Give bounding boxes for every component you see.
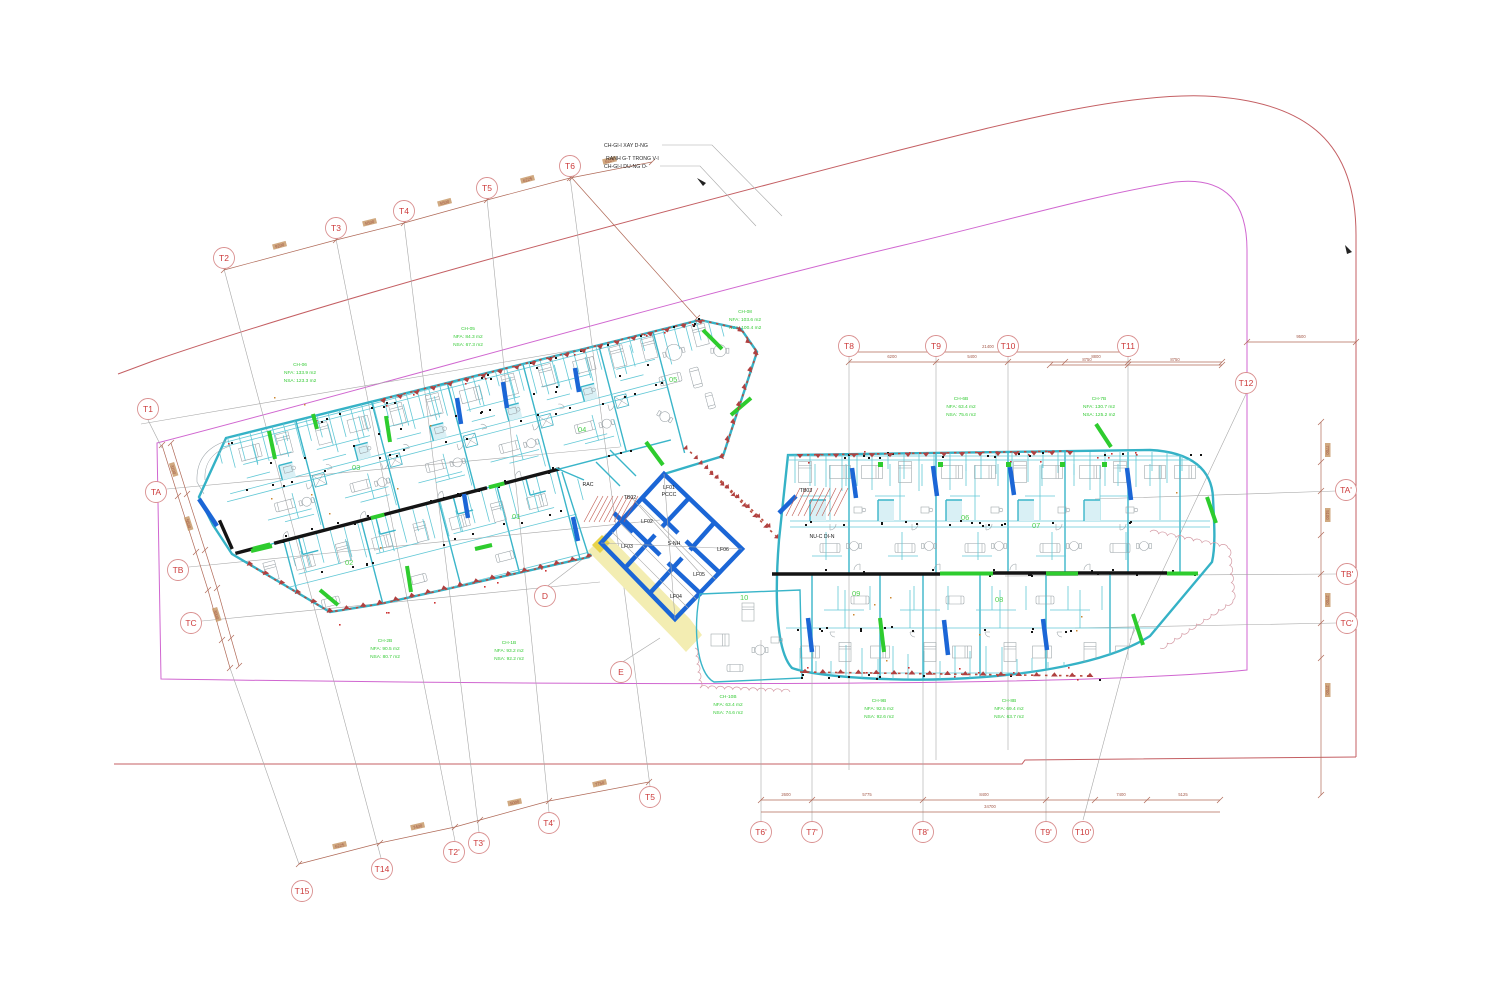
svg-text:NFA: 63.4 m2: NFA: 63.4 m2	[713, 702, 743, 708]
svg-text:07: 07	[1032, 521, 1040, 530]
svg-text:5100: 5100	[1325, 510, 1330, 520]
svg-text:TC': TC'	[1341, 618, 1354, 628]
svg-text:T3': T3'	[473, 838, 485, 848]
svg-text:NFA: 93.2 m2: NFA: 93.2 m2	[494, 648, 524, 654]
svg-text:T4': T4'	[543, 818, 555, 828]
svg-text:T15: T15	[295, 886, 310, 896]
svg-text:T6: T6	[565, 161, 575, 171]
svg-text:T9: T9	[931, 341, 941, 351]
svg-text:CH-GI-I DU-NG O-: CH-GI-I DU-NG O-	[604, 164, 648, 170]
svg-text:RAC: RAC	[583, 482, 594, 488]
svg-text:CH-GI-I XAY D-NG: CH-GI-I XAY D-NG	[604, 143, 648, 149]
svg-text:LF04: LF04	[670, 594, 682, 600]
svg-text:9500: 9500	[1296, 334, 1306, 339]
svg-text:CH-05: CH-05	[461, 326, 475, 332]
svg-text:NFA: 133.9 m2: NFA: 133.9 m2	[284, 370, 316, 376]
svg-text:T11: T11	[1121, 341, 1135, 351]
svg-text:NFA: 84.3 m2: NFA: 84.3 m2	[453, 334, 483, 340]
svg-text:CH-8B: CH-8B	[1002, 698, 1016, 704]
svg-text:8750: 8750	[1082, 357, 1092, 362]
svg-text:T9': T9'	[1040, 827, 1052, 837]
svg-text:T4: T4	[399, 206, 409, 216]
svg-text:21400: 21400	[982, 344, 994, 349]
svg-text:8750: 8750	[1170, 357, 1180, 362]
svg-text:NFA: 63.4 m2: NFA: 63.4 m2	[946, 404, 976, 410]
svg-text:S-NH: S-NH	[668, 541, 681, 547]
svg-text:NSA: 80.7 m2: NSA: 80.7 m2	[370, 654, 400, 660]
svg-text:TC: TC	[185, 618, 196, 628]
svg-text:TB02: TB02	[624, 495, 637, 501]
svg-text:LF05: LF05	[693, 572, 705, 578]
svg-text:NFA: 69.4 m2: NFA: 69.4 m2	[994, 706, 1024, 712]
svg-text:T8: T8	[844, 341, 854, 351]
svg-text:09: 09	[852, 589, 860, 598]
svg-text:D: D	[542, 591, 548, 601]
svg-text:TB03: TB03	[800, 488, 813, 494]
svg-text:02: 02	[345, 558, 353, 567]
svg-text:TB: TB	[173, 565, 184, 575]
svg-text:10: 10	[740, 593, 748, 602]
svg-text:NSA: 67.3 m2: NSA: 67.3 m2	[453, 342, 483, 348]
svg-text:T10': T10'	[1075, 827, 1092, 837]
svg-text:7400: 7400	[1116, 792, 1126, 797]
svg-text:TA': TA'	[1340, 485, 1352, 495]
svg-text:CH-2B: CH-2B	[378, 638, 392, 644]
svg-text:CH-6B: CH-6B	[954, 396, 968, 402]
svg-text:NSA: 74.6 m2: NSA: 74.6 m2	[713, 710, 743, 716]
svg-text:CH-08: CH-08	[738, 309, 752, 315]
svg-text:CH-06: CH-06	[293, 362, 307, 368]
svg-text:T2': T2'	[448, 847, 460, 857]
svg-text:NSA: 92.2 m2: NSA: 92.2 m2	[494, 656, 524, 662]
svg-text:LF06: LF06	[717, 547, 729, 553]
svg-text:NSA: 75.6 m2: NSA: 75.6 m2	[946, 412, 976, 418]
svg-text:NU-C DI-N: NU-C DI-N	[809, 534, 834, 540]
svg-text:TA: TA	[151, 487, 162, 497]
svg-text:CH-9B: CH-9B	[872, 698, 886, 704]
svg-text:PCCC: PCCC	[662, 492, 677, 498]
svg-text:T8': T8'	[917, 827, 929, 837]
svg-text:2700: 2700	[1325, 595, 1330, 605]
svg-text:8400: 8400	[979, 792, 989, 797]
svg-text:T7': T7'	[806, 827, 818, 837]
svg-text:5125: 5125	[1178, 792, 1188, 797]
svg-text:6200: 6200	[887, 354, 897, 359]
svg-text:NSA: 123.3 m2: NSA: 123.3 m2	[284, 378, 317, 384]
svg-text:T2: T2	[219, 253, 229, 263]
svg-text:06: 06	[961, 513, 969, 522]
svg-text:7700: 7700	[1325, 445, 1330, 455]
svg-text:2600: 2600	[781, 792, 791, 797]
svg-text:5775: 5775	[862, 792, 872, 797]
svg-text:T14: T14	[375, 864, 390, 874]
svg-text:5400: 5400	[967, 354, 977, 359]
svg-text:NSA: 125.2 m2: NSA: 125.2 m2	[1083, 412, 1116, 418]
svg-text:T5: T5	[645, 792, 655, 802]
svg-text:34700: 34700	[984, 804, 996, 809]
svg-text:LF02: LF02	[641, 519, 653, 525]
svg-text:T5: T5	[482, 183, 492, 193]
svg-text:NFA: 90.5 m2: NFA: 90.5 m2	[370, 646, 400, 652]
svg-text:04: 04	[578, 425, 586, 434]
svg-text:01: 01	[512, 512, 520, 521]
svg-text:8800: 8800	[1091, 354, 1101, 359]
svg-text:08: 08	[995, 595, 1003, 604]
svg-text:CH-1B: CH-1B	[502, 640, 516, 646]
svg-text:T10: T10	[1001, 341, 1016, 351]
svg-text:NSA: 92.6 m2: NSA: 92.6 m2	[864, 714, 894, 720]
svg-text:LF01: LF01	[663, 485, 675, 491]
svg-text:05: 05	[669, 375, 677, 384]
svg-text:T12: T12	[1239, 378, 1254, 388]
svg-text:T1: T1	[143, 404, 153, 414]
svg-text:03: 03	[352, 463, 360, 472]
svg-text:TB': TB'	[1341, 569, 1354, 579]
svg-text:LF03: LF03	[621, 544, 633, 550]
svg-text:NSA: 63.7 m2: NSA: 63.7 m2	[994, 714, 1024, 720]
svg-text:T3: T3	[331, 223, 341, 233]
svg-text:T6': T6'	[755, 827, 767, 837]
svg-text:RANH G-T TRONG V-I: RANH G-T TRONG V-I	[606, 156, 659, 162]
svg-text:2700: 2700	[1325, 685, 1330, 695]
svg-text:NFA: 103.6 m2: NFA: 103.6 m2	[729, 317, 761, 323]
svg-text:CH-7B: CH-7B	[1092, 396, 1106, 402]
svg-text:CH-10B: CH-10B	[719, 694, 736, 700]
svg-text:E: E	[618, 667, 624, 677]
svg-text:NFA: 92.5 m2: NFA: 92.5 m2	[864, 706, 894, 712]
svg-text:NFA: 130.7 m2: NFA: 130.7 m2	[1083, 404, 1115, 410]
